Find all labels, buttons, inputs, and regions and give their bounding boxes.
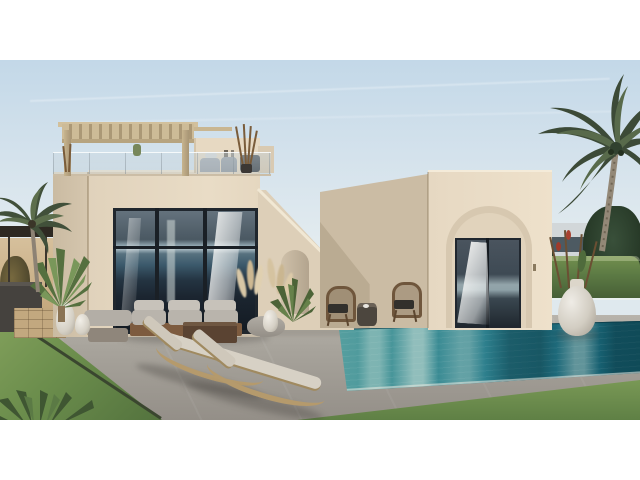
pergola-leg: [182, 130, 189, 176]
villa-photo: [0, 60, 640, 420]
palm-tree-right: [492, 60, 640, 266]
table-decor: [363, 304, 369, 308]
window-transom: [113, 246, 258, 249]
wicker-armchair: [388, 282, 420, 322]
agave-plant: [0, 390, 106, 420]
plant-pot: [241, 164, 252, 173]
palm-shrub: [268, 272, 318, 330]
pergola-slats: [62, 124, 194, 140]
side-table: [357, 303, 377, 326]
pergola-beam: [194, 127, 232, 131]
palm-tree-left: [0, 172, 102, 302]
white-urn: [558, 286, 596, 336]
sun-lounger: [183, 336, 348, 420]
cactus-plant: [133, 144, 141, 156]
right-villa-corner: [427, 172, 429, 328]
pergola-beam: [62, 139, 194, 143]
wicker-armchair: [322, 286, 354, 326]
letterboxed-photo-canvas: { "scene": { "type": "natural-image", "d…: [0, 0, 640, 480]
interior-light-strip: [167, 220, 175, 302]
